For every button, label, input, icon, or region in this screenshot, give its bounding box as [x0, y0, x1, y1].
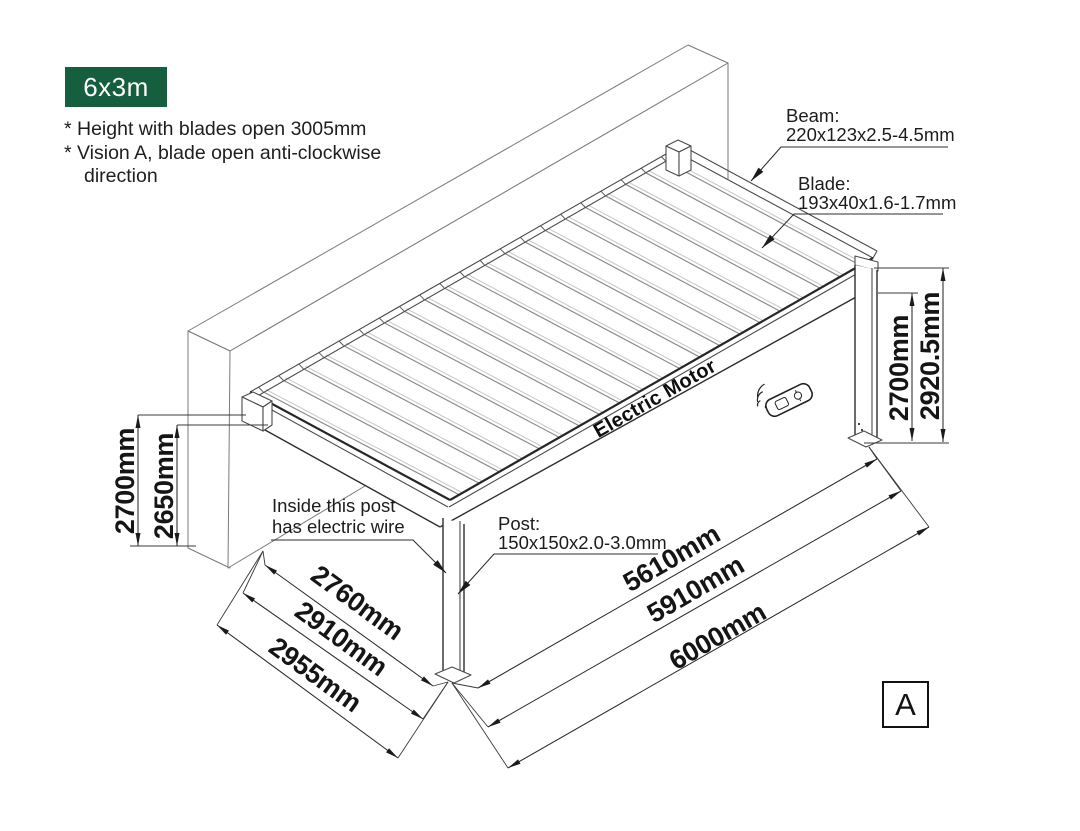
dim-right-height-inner: 2700mm: [884, 315, 914, 421]
remote-control-icon: [750, 367, 814, 422]
electric-wire-note-line1: Inside this post: [272, 495, 395, 516]
footnotes: * Height with blades open 3005mm * Visio…: [64, 118, 381, 189]
footnote-height: * Height with blades open 3005mm: [64, 118, 381, 142]
beam-callout-title: Beam:: [786, 105, 839, 126]
size-badge: 6x3m: [65, 67, 167, 107]
footnote-vision-cont: direction: [64, 165, 381, 189]
pergola-technical-drawing: 2700mm 2650mm 2700mm 2920.5mm 2760mm 291…: [0, 0, 1080, 831]
post-callout-title: Post:: [498, 513, 540, 534]
electric-wire-note-line2: has electric wire: [272, 516, 405, 537]
blade-callout-spec: 193x40x1.6-1.7mm: [798, 192, 956, 213]
beam-callout-spec: 220x123x2.5-4.5mm: [786, 124, 955, 145]
dim-right-height-outer: 2920.5mm: [915, 292, 945, 420]
footnote-vision: * Vision A, blade open anti-clockwise: [64, 142, 381, 166]
dim-left-wall-height-inner: 2650mm: [149, 433, 179, 539]
view-label-box: A: [882, 681, 929, 728]
dim-left-wall-height-outer: 2700mm: [110, 428, 140, 534]
blade-callout-title: Blade:: [798, 173, 850, 194]
post-callout-spec: 150x150x2.0-3.0mm: [498, 532, 667, 553]
